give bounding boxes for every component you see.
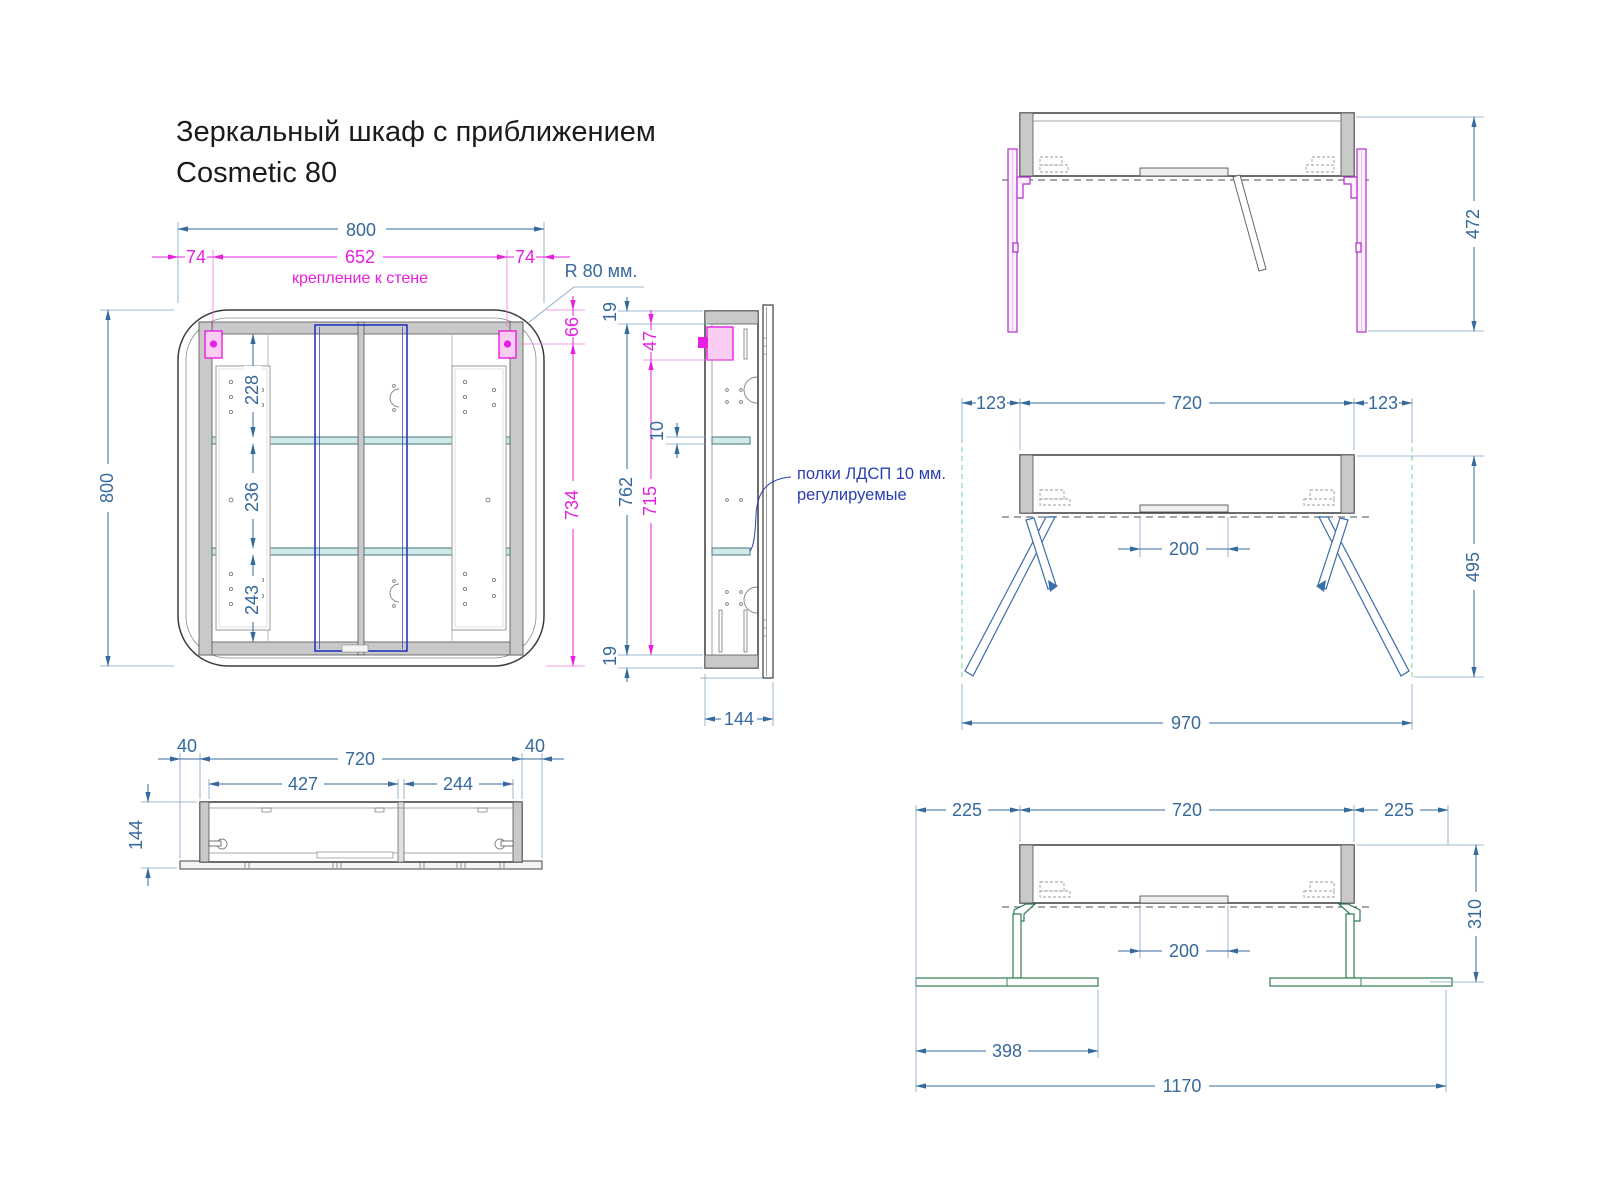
dim-front-74-left: 74 [186, 247, 206, 267]
side-wall-bracket [698, 327, 733, 360]
dim-legs-720: 720 [1172, 393, 1202, 413]
wall-dim-height: 310 [1356, 845, 1485, 982]
side-dim-depth: 144 [705, 674, 773, 729]
dim-wall-200: 200 [1169, 941, 1199, 961]
side-door [763, 305, 773, 678]
wall-dim-200: 200 [1118, 905, 1250, 961]
label-mount-note: крепление к стене [292, 270, 428, 287]
dim-legs-970: 970 [1171, 713, 1201, 733]
front-dim-sections: 228 236 243 [242, 334, 262, 642]
plan-divider [398, 802, 404, 862]
plan-dim-depth: 144 [126, 784, 197, 886]
front-center-divider [358, 322, 364, 655]
wall-bracket-right [1270, 904, 1452, 986]
dim-front-652: 652 [345, 247, 375, 267]
front-radius-callout: R 80 мм. [528, 261, 644, 323]
drawing-title: Зеркальный шкаф с приближением Cosmetic … [176, 116, 656, 189]
open-dim-height: 472 [1356, 117, 1484, 331]
dim-wall-1170: 1170 [1163, 1076, 1202, 1096]
legs-leg-right [1316, 517, 1409, 676]
wall-bar [1020, 845, 1354, 903]
dim-front-734: 734 [562, 490, 582, 520]
title-line2: Cosmetic 80 [176, 157, 337, 189]
side-dim-blue-chain: 19 762 19 [600, 297, 636, 682]
side-dim-magenta-chain: 47 715 [640, 310, 660, 655]
open-strut [1233, 175, 1266, 271]
note-shelves-line1: полки ЛДСП 10 мм. [797, 465, 946, 483]
dim-side-762: 762 [616, 477, 636, 507]
open-center-board [1140, 168, 1228, 176]
wall-dim-foot: 398 [916, 990, 1098, 1061]
side-view: 19 762 19 47 715 10 [600, 297, 946, 729]
dim-side-19-bottom: 19 [600, 646, 620, 666]
front-view: 800 74 652 74 крепление к стене R 80 мм. [97, 219, 644, 666]
note-shelves-line2: регулируемые [797, 486, 907, 504]
side-dim-shelf-thickness: 10 [647, 421, 706, 458]
dim-plan-427: 427 [288, 774, 318, 794]
dim-plan-40-right: 40 [525, 736, 545, 756]
dim-front-236: 236 [242, 482, 262, 512]
front-wall-bracket-left [205, 331, 222, 358]
legs-dim-top-row: 123 720 123 [962, 393, 1412, 450]
legs-dim-span: 970 [962, 684, 1412, 733]
open-rail-right [1344, 149, 1366, 332]
open-rail-left [1008, 149, 1030, 332]
dim-front-66: 66 [562, 317, 582, 337]
dim-wall-398: 398 [992, 1041, 1022, 1061]
dim-front-228: 228 [242, 375, 262, 405]
front-dim-total-height: 800 [97, 310, 174, 666]
technical-drawing-page: Зеркальный шкаф с приближением Cosmetic … [0, 0, 1600, 1200]
side-shelf-upper [712, 437, 750, 444]
wall-bracket-left [916, 904, 1098, 986]
dim-side-10: 10 [647, 421, 667, 441]
dim-front-800-top: 800 [346, 220, 376, 240]
dim-legs-495: 495 [1463, 552, 1483, 582]
open-view: 472 [1002, 113, 1484, 332]
dim-side-715: 715 [640, 486, 660, 516]
plan-view: 40 720 40 427 244 144 [126, 736, 564, 886]
side-shelf-lower [712, 548, 750, 555]
dim-wall-225-left: 225 [952, 800, 982, 820]
dim-legs-200: 200 [1169, 539, 1199, 559]
dim-plan-720: 720 [345, 749, 375, 769]
wall-view: 225 720 225 200 310 [916, 800, 1485, 1096]
drawing-canvas: Зеркальный шкаф с приближением Cosmetic … [0, 0, 1600, 1200]
dim-legs-123-left: 123 [976, 393, 1006, 413]
open-bar [1020, 113, 1354, 176]
dim-legs-123-right: 123 [1368, 393, 1398, 413]
shelf-annotation: полки ЛДСП 10 мм. регулируемые [750, 465, 946, 551]
label-corner-radius: R 80 мм. [565, 261, 638, 281]
dim-side-19-top: 19 [600, 302, 620, 322]
legs-dim-height: 495 [1357, 456, 1484, 677]
dim-plan-144: 144 [126, 820, 146, 850]
dim-open-472: 472 [1463, 209, 1483, 239]
dim-side-47: 47 [640, 331, 660, 351]
front-wall-bracket-right [499, 331, 516, 358]
dim-front-243: 243 [242, 585, 262, 615]
dim-plan-40-left: 40 [177, 736, 197, 756]
dim-side-144: 144 [724, 709, 754, 729]
title-line1: Зеркальный шкаф с приближением [176, 116, 656, 148]
dim-wall-310: 310 [1465, 899, 1485, 929]
dim-plan-244: 244 [443, 774, 473, 794]
dim-wall-720: 720 [1172, 800, 1202, 820]
legs-view: 123 720 123 200 970 [962, 393, 1484, 733]
dim-front-800-left: 800 [97, 473, 117, 503]
legs-leg-left [965, 517, 1058, 676]
plan-dim-doors-row: 427 244 [209, 774, 513, 799]
legs-center-board [1140, 505, 1228, 512]
side-body [705, 311, 758, 668]
dim-front-74-right: 74 [515, 247, 535, 267]
front-door-label-plate [342, 645, 368, 652]
dim-wall-225-right: 225 [1384, 800, 1414, 820]
wall-center-board [1140, 896, 1228, 903]
legs-dim-200: 200 [1118, 517, 1250, 559]
